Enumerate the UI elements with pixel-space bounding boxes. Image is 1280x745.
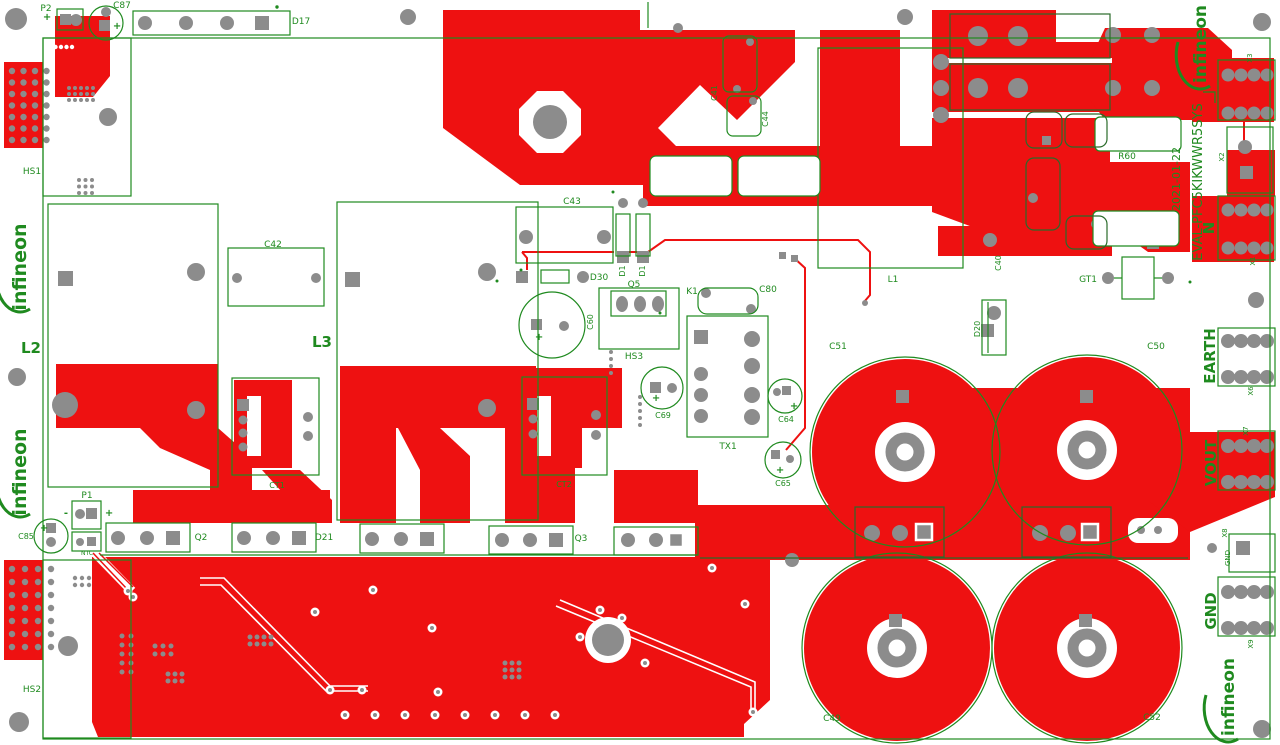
ref-label: TX1 — [718, 442, 736, 452]
ref-label: C42 — [264, 240, 282, 250]
via — [90, 191, 94, 195]
via — [9, 102, 15, 108]
via — [85, 86, 89, 90]
via — [43, 114, 49, 120]
via — [9, 68, 15, 74]
via — [598, 608, 602, 612]
ref-label: D17 — [292, 17, 310, 27]
via — [248, 642, 253, 647]
via — [9, 566, 15, 572]
ref-label: C43 — [563, 197, 581, 207]
copper-c40-bar — [938, 226, 1112, 256]
ref-label: C44 — [761, 111, 770, 127]
via — [120, 652, 125, 657]
via — [493, 713, 497, 717]
via — [84, 185, 88, 189]
via — [173, 679, 178, 684]
via — [9, 618, 15, 624]
ref-label: C40 — [994, 255, 1003, 271]
via — [9, 592, 15, 598]
ref-label: C85 — [18, 532, 34, 541]
via — [35, 592, 41, 598]
via — [43, 91, 49, 97]
via — [48, 644, 54, 650]
ref-label: P1 — [81, 491, 92, 501]
via — [90, 178, 94, 182]
via — [91, 98, 95, 102]
via — [73, 98, 77, 102]
via — [126, 589, 130, 593]
ref-label: D21 — [315, 533, 333, 543]
via — [85, 98, 89, 102]
via — [343, 713, 347, 717]
via — [517, 675, 522, 680]
via — [91, 86, 95, 90]
via — [510, 675, 515, 680]
via — [53, 45, 57, 49]
ref-label: X6 — [1247, 386, 1255, 396]
via — [35, 579, 41, 585]
via — [35, 631, 41, 637]
via — [48, 566, 54, 572]
via — [166, 679, 171, 684]
via — [43, 137, 49, 143]
via — [32, 125, 38, 131]
ref-label: D30 — [590, 273, 609, 283]
via — [73, 583, 77, 587]
via — [79, 92, 83, 96]
via — [9, 605, 15, 611]
via — [9, 644, 15, 650]
via — [35, 605, 41, 611]
via — [751, 710, 755, 714]
ref-label: EVAL-PFC5KIKWWR5SYS — [1191, 103, 1206, 260]
via — [255, 642, 260, 647]
ref-label: K1 — [686, 287, 698, 297]
via — [403, 713, 407, 717]
via — [32, 137, 38, 143]
ref-label: C41 — [710, 85, 719, 101]
via — [70, 45, 74, 49]
ref-label: X3 — [1246, 53, 1254, 62]
via — [120, 661, 125, 666]
via — [161, 652, 166, 657]
via — [73, 576, 77, 580]
logo-text: infineon — [9, 223, 31, 310]
ref-label: HS1 — [23, 167, 41, 177]
via — [262, 635, 267, 640]
ref-label: X1 — [1249, 256, 1257, 265]
polarity-mark: + — [113, 21, 121, 32]
ref-label: EARTH — [1201, 328, 1219, 384]
via — [59, 45, 63, 49]
ref-label: D20 — [973, 321, 982, 337]
via — [20, 102, 26, 108]
via — [638, 395, 642, 399]
via — [35, 618, 41, 624]
via — [269, 635, 274, 640]
via — [120, 643, 125, 648]
via — [166, 672, 171, 677]
via — [262, 642, 267, 647]
via — [80, 583, 84, 587]
via — [120, 634, 125, 639]
via — [48, 579, 54, 585]
ref-label: C49 — [823, 714, 841, 724]
via — [510, 668, 515, 673]
via — [48, 605, 54, 611]
ref-label: C80 — [759, 285, 777, 295]
via — [328, 688, 332, 692]
ref-label: C51 — [829, 342, 847, 352]
via — [22, 605, 28, 611]
via — [85, 92, 89, 96]
via — [523, 713, 527, 717]
infineon-logo: infineon — [0, 428, 31, 517]
ref-label: HS2 — [23, 685, 41, 695]
ref-label: D1 — [618, 265, 627, 276]
via — [22, 618, 28, 624]
via — [77, 185, 81, 189]
polarity-mark: + — [40, 523, 48, 534]
polarity-mark: + — [652, 393, 660, 404]
via — [153, 644, 158, 649]
via — [43, 79, 49, 85]
polarity-mark: + — [105, 508, 113, 519]
via — [20, 79, 26, 85]
via — [87, 576, 91, 580]
via — [87, 583, 91, 587]
ref-label: NTC — [81, 550, 93, 557]
via — [578, 635, 582, 639]
via — [48, 631, 54, 637]
via — [638, 416, 642, 420]
ref-label: GND — [1224, 550, 1232, 566]
via — [22, 631, 28, 637]
via — [180, 672, 185, 677]
ref-label: C69 — [655, 411, 671, 420]
via — [9, 79, 15, 85]
via — [32, 102, 38, 108]
via — [248, 635, 253, 640]
ref-label: D1 — [638, 265, 647, 276]
ref-label: Q2 — [195, 533, 208, 543]
via — [638, 423, 642, 427]
ref-label: GND — [1202, 592, 1220, 629]
via — [48, 592, 54, 598]
via — [503, 675, 508, 680]
via — [517, 668, 522, 673]
via — [643, 661, 647, 665]
ref-label: X2 — [1218, 152, 1226, 161]
via — [609, 371, 613, 375]
logo-text: infineon — [9, 428, 31, 515]
via — [73, 86, 77, 90]
via — [84, 178, 88, 182]
outline-fuse2 — [738, 156, 820, 196]
via — [9, 137, 15, 143]
via — [269, 642, 274, 647]
via — [22, 644, 28, 650]
via — [35, 566, 41, 572]
via — [503, 661, 508, 666]
via — [73, 92, 77, 96]
via — [48, 618, 54, 624]
via — [609, 350, 613, 354]
via — [313, 610, 317, 614]
via — [77, 191, 81, 195]
via — [169, 652, 174, 657]
via — [255, 635, 260, 640]
via — [553, 713, 557, 717]
via — [373, 713, 377, 717]
pcb-layout-canvas: P2C87D17HS1L2C42L3C43D1D1D30Q5HS3C60C69T… — [0, 0, 1280, 745]
via — [32, 79, 38, 85]
ref-label: CT2 — [556, 480, 572, 489]
ref-label: C65 — [775, 479, 791, 488]
ref-label: Q3 — [575, 534, 588, 544]
via — [743, 602, 747, 606]
via — [43, 68, 49, 74]
via — [609, 357, 613, 361]
infineon-logo: infineon — [0, 223, 31, 312]
via — [67, 92, 71, 96]
via — [153, 652, 158, 657]
via — [161, 644, 166, 649]
polarity-mark: + — [535, 332, 543, 343]
via — [22, 566, 28, 572]
ref-label: C64 — [778, 415, 794, 424]
ref-label: VOUT — [1202, 439, 1220, 486]
via — [22, 579, 28, 585]
via — [20, 125, 26, 131]
via — [64, 45, 68, 49]
via — [43, 125, 49, 131]
via — [91, 92, 95, 96]
via — [169, 644, 174, 649]
via — [67, 86, 71, 90]
via — [67, 98, 71, 102]
via — [20, 114, 26, 120]
ref-label: Q5 — [628, 280, 641, 290]
via — [371, 588, 375, 592]
ref-label: L3 — [312, 333, 332, 351]
via — [79, 98, 83, 102]
logo-text: infineon — [1219, 658, 1239, 736]
ref-label: R60 — [1118, 152, 1136, 162]
ref-label: L1 — [888, 275, 899, 285]
via — [9, 114, 15, 120]
via — [433, 713, 437, 717]
via — [173, 672, 178, 677]
ref-label: L2 — [21, 339, 41, 357]
outline-c60 — [519, 292, 585, 358]
outline-r60 — [1095, 117, 1181, 151]
copper-l3-bar — [340, 366, 536, 428]
ref-label: X8 — [1221, 528, 1229, 537]
via — [620, 616, 624, 620]
via — [32, 114, 38, 120]
polarity-mark: + — [790, 401, 798, 412]
outline-fuse1 — [650, 156, 732, 196]
via — [517, 661, 522, 666]
via — [430, 626, 434, 630]
outline-c42 — [228, 248, 324, 306]
ref-label: HS3 — [625, 352, 643, 362]
via — [120, 670, 125, 675]
via — [32, 91, 38, 97]
via — [9, 631, 15, 637]
via — [638, 409, 642, 413]
via — [20, 91, 26, 97]
ref-label: C50 — [1147, 342, 1165, 352]
via — [22, 592, 28, 598]
polarity-mark: + — [43, 12, 51, 23]
via — [510, 661, 515, 666]
via — [48, 45, 52, 49]
ref-label: X9 — [1247, 639, 1255, 648]
via — [43, 102, 49, 108]
ref-label: C52 — [1143, 713, 1161, 723]
via — [638, 402, 642, 406]
ref-label: 2021-01-22 — [1170, 147, 1183, 211]
ref-label: C87 — [113, 1, 131, 11]
ref-label: X7 — [1242, 426, 1250, 435]
via — [503, 668, 508, 673]
via — [90, 185, 94, 189]
via — [463, 713, 467, 717]
via — [84, 191, 88, 195]
outline-gt1 — [1122, 257, 1154, 299]
via — [79, 86, 83, 90]
copper-bottom-pour — [92, 557, 770, 737]
via — [710, 566, 714, 570]
via — [9, 91, 15, 97]
via — [180, 679, 185, 684]
via — [436, 690, 440, 694]
via — [609, 364, 613, 368]
ref-label: C60 — [586, 314, 595, 330]
via — [20, 68, 26, 74]
outline-x8 — [1229, 534, 1275, 572]
logo-text: infineon — [1191, 5, 1211, 83]
via — [32, 68, 38, 74]
via — [77, 178, 81, 182]
via — [80, 576, 84, 580]
via — [9, 579, 15, 585]
via — [9, 125, 15, 131]
polarity-mark: - — [64, 508, 68, 519]
polarity-mark: + — [776, 465, 784, 476]
via — [35, 644, 41, 650]
outline-d30 — [541, 270, 569, 283]
ref-label: GT1 — [1079, 275, 1097, 285]
via — [20, 137, 26, 143]
via — [131, 595, 135, 599]
ref-label: CT1 — [269, 481, 285, 490]
via — [360, 688, 364, 692]
octagon-pad — [533, 105, 567, 139]
infineon-logo: infineon — [1204, 658, 1239, 742]
